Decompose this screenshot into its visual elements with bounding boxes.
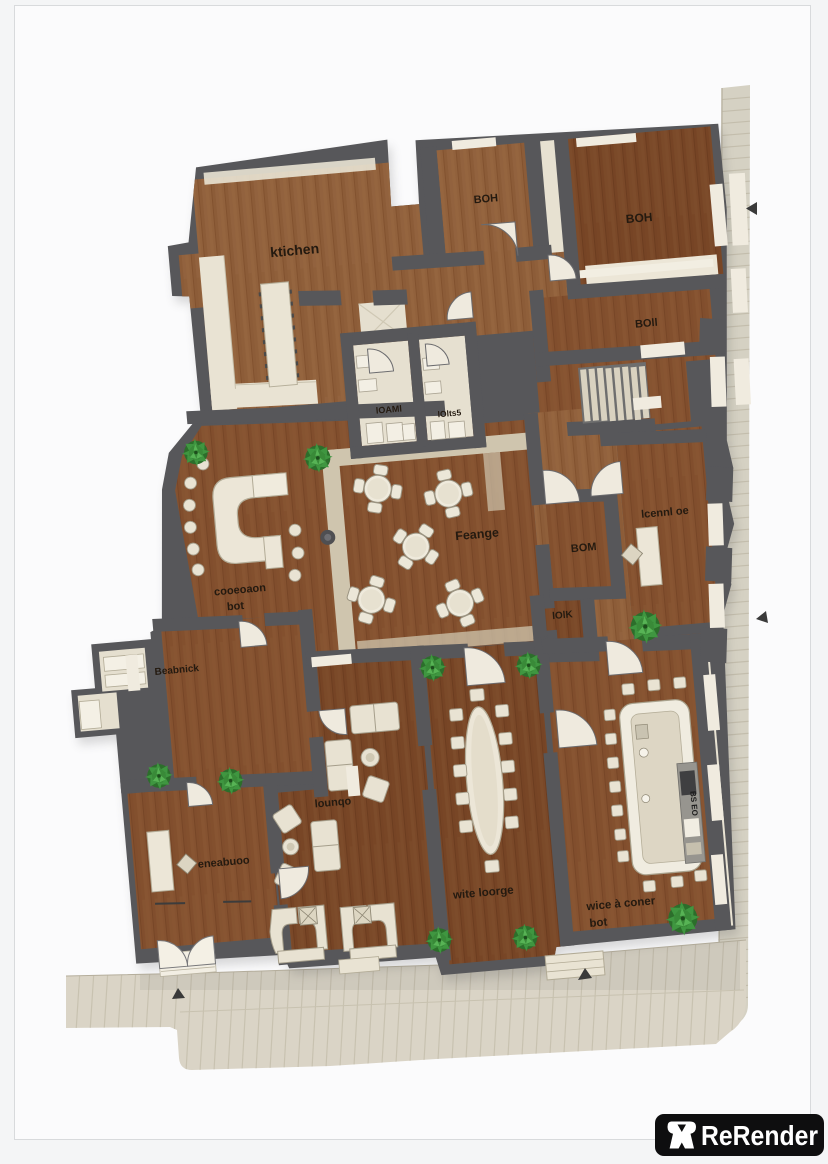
svg-text:lOlK: lOlK — [552, 609, 574, 622]
svg-text:BOH: BOH — [625, 210, 653, 226]
svg-text:BOH: BOH — [473, 192, 498, 206]
svg-text:BOM: BOM — [570, 541, 597, 555]
svg-text:bot: bot — [589, 916, 608, 930]
svg-text:ReRender: ReRender — [701, 1120, 818, 1151]
svg-text:BOll: BOll — [635, 317, 659, 331]
svg-text:bot: bot — [226, 600, 244, 613]
svg-text:lOlts5: lOlts5 — [437, 407, 462, 419]
